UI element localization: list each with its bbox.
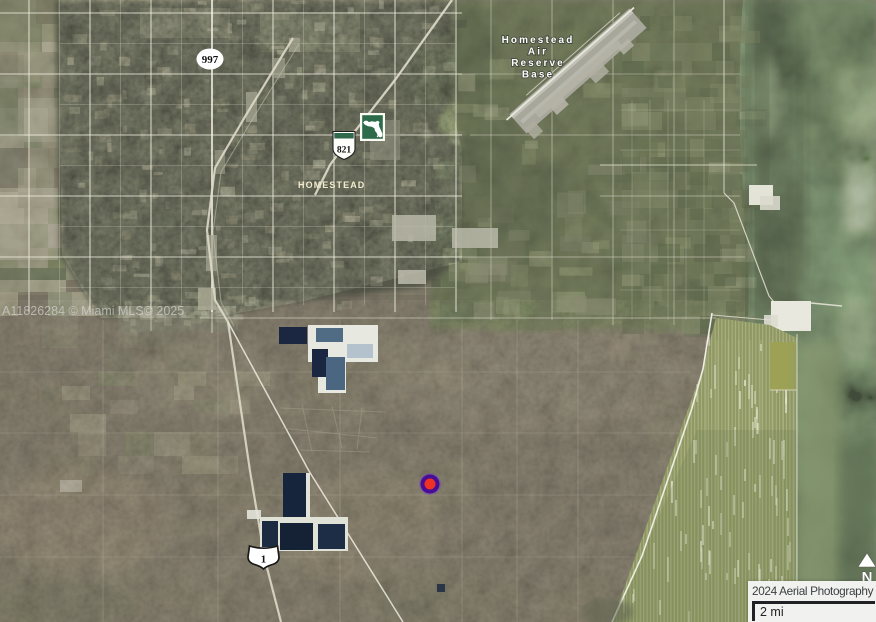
svg-text:Reserve: Reserve — [511, 58, 565, 69]
svg-text:HOMESTEAD: HOMESTEAD — [298, 180, 365, 190]
svg-text:Homestead: Homestead — [502, 35, 575, 46]
svg-text:Base: Base — [522, 70, 554, 81]
svg-text:821: 821 — [337, 146, 352, 156]
svg-text:Air: Air — [528, 47, 548, 58]
svg-text:1: 1 — [261, 554, 267, 566]
svg-text:A11826284 © Miami MLS© 2025: A11826284 © Miami MLS© 2025 — [2, 304, 184, 318]
svg-text:997: 997 — [202, 54, 219, 66]
